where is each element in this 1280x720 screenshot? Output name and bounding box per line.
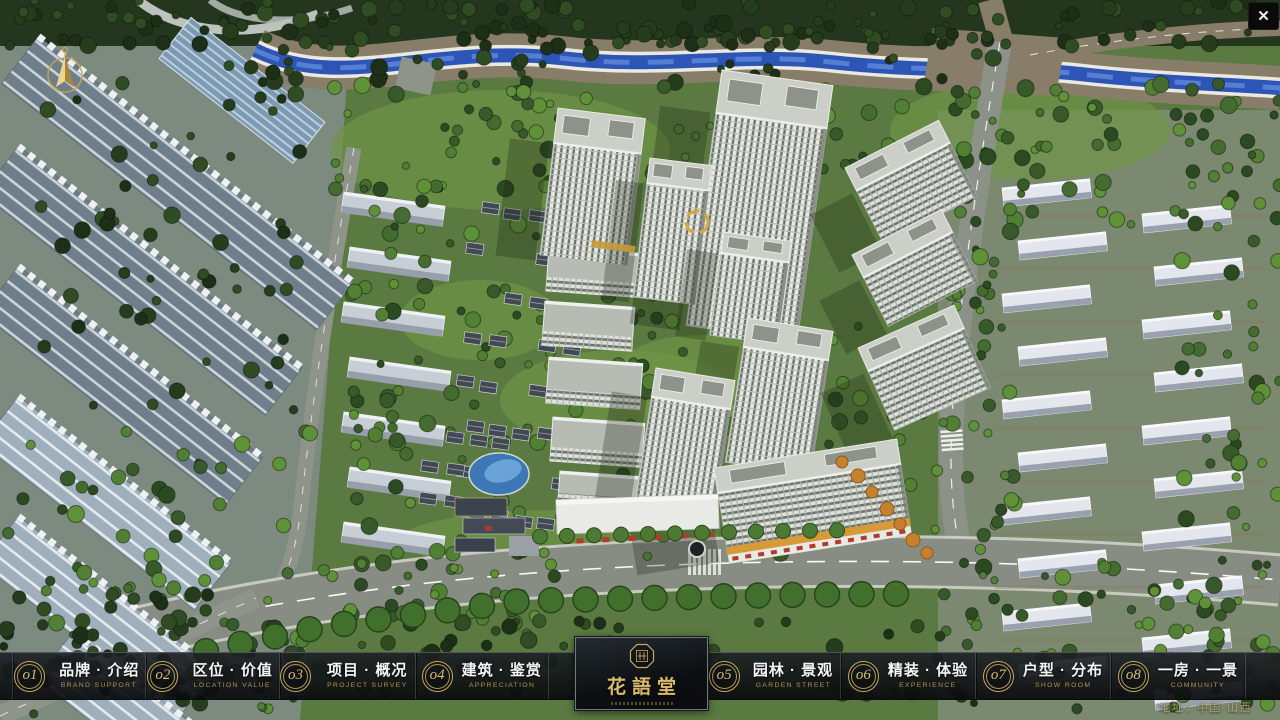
- nav-number-badge: o7: [983, 661, 1014, 692]
- nav-item-interior[interactable]: o6 精装 · 体验 EXPERIENCE: [840, 653, 975, 699]
- nav-item-location[interactable]: o2 区位 · 价值 LOCATION VALUE: [145, 653, 278, 699]
- project-logo-text: 花語堂: [601, 672, 682, 699]
- nav-number-badge: o5: [709, 661, 740, 692]
- nav-label: 户型 · 分布: [1023, 663, 1103, 678]
- nav-number-badge: o1: [14, 661, 45, 692]
- project-logo-subtext: [611, 702, 673, 705]
- nav-label: 园林 · 景观: [753, 663, 833, 678]
- nav-label: 建筑 · 鉴赏: [462, 663, 542, 678]
- nav-number-badge: o3: [280, 661, 311, 692]
- nav-number-badge: o2: [147, 661, 178, 692]
- nav-item-architecture[interactable]: o4 建筑 · 鉴赏 APPRECIATION: [415, 653, 548, 699]
- address-text: 地址：中国·山西: [1159, 699, 1252, 715]
- nav-group-right: o5 园林 · 景观 GARDEN STREET o6 精装 · 体验 EXPE…: [705, 653, 1246, 699]
- nav-sublabel: GARDEN STREET: [755, 682, 830, 689]
- nav-sublabel: BRAND SUPPORT: [61, 682, 137, 689]
- nav-item-project[interactable]: o3 项目 · 概况 PROJECT SURVEY: [279, 653, 415, 699]
- sales-presentation-screen: ✕ o1 品牌 · 介绍 BRAND SUPPORT o2 区位 · 价值 LO…: [0, 0, 1280, 720]
- nav-item-floorplan[interactable]: o7 户型 · 分布 SHOW ROOM: [975, 653, 1110, 699]
- nav-number-badge: o4: [422, 661, 453, 692]
- nav-item-views[interactable]: o8 一房 · 一景 COMMUNITY: [1110, 653, 1245, 699]
- site-aerial-map[interactable]: [0, 0, 1280, 720]
- nav-label: 一房 · 一景: [1158, 663, 1238, 678]
- nav-item-brand[interactable]: o1 品牌 · 介绍 BRAND SUPPORT: [12, 653, 145, 699]
- nav-sublabel: EXPERIENCE: [899, 682, 956, 689]
- nav-sublabel: SHOW ROOM: [1035, 682, 1091, 689]
- nav-label: 项目 · 概况: [327, 663, 407, 678]
- nav-item-garden[interactable]: o5 园林 · 景观 GARDEN STREET: [705, 653, 840, 699]
- nav-sublabel: APPRECIATION: [469, 682, 535, 689]
- nav-sublabel: LOCATION VALUE: [194, 682, 271, 689]
- nav-label: 精装 · 体验: [888, 663, 968, 678]
- nav-number-badge: o6: [848, 661, 879, 692]
- project-logo-plaque[interactable]: 花語堂: [575, 637, 708, 710]
- nav-sublabel: PROJECT SURVEY: [327, 682, 407, 689]
- nav-sublabel: COMMUNITY: [1171, 682, 1225, 689]
- nav-label: 品牌 · 介绍: [59, 663, 139, 678]
- nav-number-badge: o8: [1118, 661, 1149, 692]
- seal-emblem-icon: [629, 643, 655, 669]
- close-button[interactable]: ✕: [1248, 2, 1279, 30]
- compass-icon: [36, 38, 94, 104]
- nav-group-left: o1 品牌 · 介绍 BRAND SUPPORT o2 区位 · 价值 LOCA…: [12, 653, 549, 699]
- nav-label: 区位 · 价值: [193, 663, 273, 678]
